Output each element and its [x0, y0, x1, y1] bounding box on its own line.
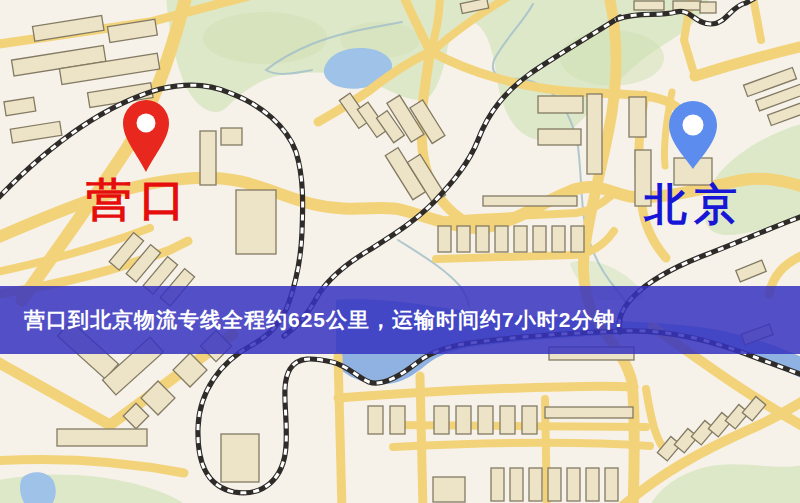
building	[4, 97, 36, 116]
building	[586, 468, 599, 501]
road	[338, 386, 634, 398]
road	[393, 443, 650, 447]
building	[533, 226, 546, 252]
origin-label: 营口	[86, 177, 194, 223]
building	[57, 429, 147, 446]
building	[476, 226, 489, 252]
building	[571, 226, 584, 252]
building	[514, 226, 527, 252]
building	[567, 468, 580, 501]
building	[483, 196, 577, 206]
building	[495, 226, 508, 252]
building	[200, 131, 216, 185]
building	[236, 190, 276, 254]
building	[500, 406, 515, 434]
building	[700, 2, 716, 13]
building	[634, 1, 664, 10]
building	[491, 468, 504, 501]
map-view: 营口 北京 营口到北京物流专线全程约625公里，运输时间约7小时2分钟.	[0, 0, 800, 503]
building	[438, 226, 451, 252]
building	[390, 406, 405, 434]
building	[529, 468, 542, 501]
road	[338, 356, 342, 503]
building	[673, 1, 701, 10]
building	[368, 406, 383, 434]
building	[478, 406, 493, 434]
building	[221, 128, 242, 145]
building	[587, 94, 602, 174]
building	[545, 407, 633, 418]
building	[538, 96, 583, 113]
road	[0, 460, 184, 474]
building	[433, 477, 465, 502]
building	[221, 434, 259, 482]
building	[456, 406, 471, 434]
road	[752, 0, 761, 40]
destination-label: 北京	[644, 183, 744, 227]
origin-pin-icon[interactable]	[123, 100, 169, 172]
route-info-banner: 营口到北京物流专线全程约625公里，运输时间约7小时2分钟.	[0, 286, 800, 354]
building	[538, 129, 581, 145]
building	[510, 468, 523, 501]
map-canvas[interactable]	[0, 0, 800, 503]
building	[434, 406, 449, 434]
building	[736, 260, 766, 282]
building	[548, 468, 561, 501]
building	[457, 226, 470, 252]
building	[522, 406, 537, 434]
building	[552, 226, 565, 252]
building	[605, 468, 618, 501]
road	[393, 425, 646, 427]
building	[10, 121, 62, 143]
route-info-text: 营口到北京物流专线全程约625公里，运输时间约7小时2分钟.	[0, 306, 622, 334]
building	[629, 97, 646, 137]
